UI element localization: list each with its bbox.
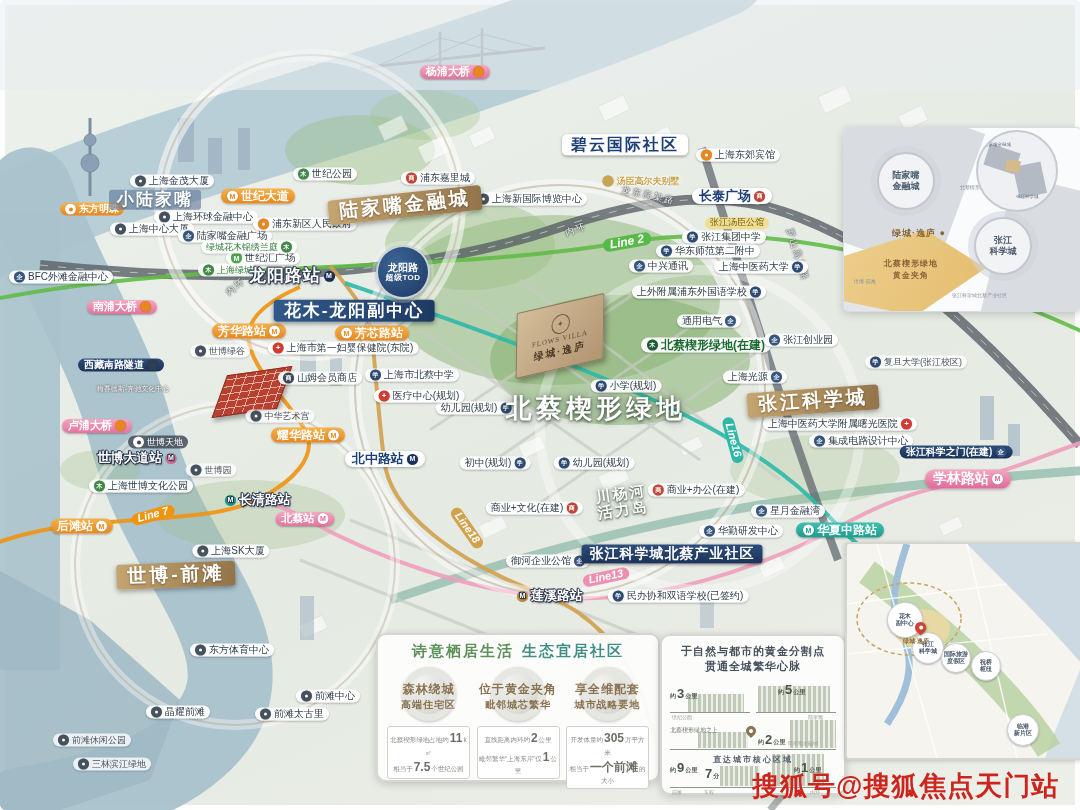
map-label: 木世纪公园	[293, 168, 357, 181]
golden-stat-caption: 世纪公园	[672, 714, 692, 720]
pin-o-icon	[701, 150, 712, 161]
inset-ring-lujiazui: 陆家嘴金融城	[877, 152, 935, 210]
inset-project-label: 绿城·逸庐 ●	[892, 227, 946, 240]
map-label: 卢浦大桥	[62, 419, 132, 433]
panel-eco-title: 诗意栖居生活生态宜居社区	[378, 642, 658, 661]
map-label: 南浦大桥	[87, 300, 157, 314]
map-label: 学民办协和双语学校(已签约)	[608, 590, 749, 603]
map-label: 上海金茂大厦	[130, 175, 214, 188]
map-label: 学华东师范第二附中	[656, 245, 760, 258]
office-icon: 企	[995, 447, 1006, 458]
map-label: 川杨河活力岛	[594, 482, 649, 521]
map-label: Line 7	[130, 504, 175, 527]
map-label: Line 2	[602, 231, 652, 252]
map-label: 学复旦大学(张江校区)	[865, 356, 967, 369]
golden-stat-caption: 前滩	[672, 789, 682, 795]
map-label: 北蔡站M	[276, 512, 335, 526]
map-label: 商商业+办公(在建)	[648, 484, 745, 497]
pin-w-icon	[65, 204, 76, 215]
map-label: 商山姆会员商店	[278, 372, 362, 385]
map-label: 上海SK大厦	[192, 545, 269, 558]
office-icon: 企	[814, 436, 825, 447]
mall-icon: 商	[653, 485, 664, 496]
map-label: 学林路站M	[925, 469, 1011, 488]
map-label: 上海东郊宾馆	[696, 149, 780, 162]
inset-bottom-right: 绿城·逸庐 花木副中心张江科学城国际旅游度假区祝桥枢纽临港新片区	[845, 542, 1080, 760]
map-label: Line13	[582, 566, 630, 587]
inset-tiny-left: 世博·前滩	[854, 278, 876, 284]
magnifier-label-2: 张江科学城	[1016, 194, 1039, 199]
map-label: 北蔡楔形绿地	[506, 394, 686, 422]
school-icon: 学	[750, 287, 761, 298]
metro-w-pink-icon: M	[992, 473, 1003, 484]
corridor-node: 祝桥枢纽	[971, 651, 1001, 681]
map-label: 企集成电路设计中心	[809, 435, 913, 448]
hospital-icon: +	[901, 419, 912, 430]
inset-ring-zhangjiang: 张江科学城	[974, 217, 1032, 275]
map-label: 后滩站M	[51, 519, 113, 534]
metro-w-orange-icon: M	[328, 429, 339, 440]
metro-navy-icon: M	[324, 270, 335, 281]
dot-orange-icon	[140, 302, 151, 313]
map-label: +医疗中心(规划)	[374, 390, 465, 403]
pin-icon	[159, 212, 170, 223]
map-label: 世博绿谷	[190, 345, 250, 358]
office-icon: 企	[14, 272, 25, 283]
map-label: 陆家嘴金融城	[327, 185, 483, 225]
hospital-icon: +	[379, 391, 390, 402]
map-label: 耀华路站M	[271, 428, 345, 443]
park-icon: 木	[281, 242, 292, 253]
pin-o-icon	[258, 219, 269, 230]
map-label: Line16	[721, 416, 745, 464]
watermark: 搜狐号@搜狐焦点天门站	[752, 768, 1059, 804]
map-label: 北中路站M	[345, 451, 425, 467]
map-label: 前滩休闲公园	[53, 734, 131, 747]
map-label: 东方体育中心	[190, 644, 274, 657]
feature-stat-box: 北蔡楔形绿地占地约11k㎡相当于7.5个世纪公园	[387, 726, 470, 779]
pin-icon	[195, 346, 206, 357]
pin-icon	[115, 224, 126, 235]
map-label: 上外附属浦东外国语学校学	[632, 286, 766, 299]
map-label: 前滩太古里	[255, 708, 329, 721]
inset-wedge-label: 北蔡楔形绿地 黄金夹角	[884, 258, 938, 282]
map-label: 前滩中心	[296, 690, 360, 703]
school-icon: 学	[792, 262, 803, 273]
golden-distance-stat: 约5公里	[778, 682, 805, 697]
mall-icon: 商	[406, 173, 417, 184]
metro-green-icon: M	[231, 253, 242, 264]
map-label: 企中兴通讯	[629, 260, 693, 273]
map-label: 内环	[564, 222, 588, 238]
map-label: 初中(规划)学	[460, 457, 531, 470]
map-label: 商浦东嘉里城	[401, 172, 475, 185]
map-label: 上海光源企	[723, 371, 787, 384]
map-label: 长泰广场商	[692, 188, 772, 204]
map-label: 商业+文化(在建)商	[486, 502, 583, 515]
map-label: M莲溪路站	[517, 589, 583, 603]
office-icon: 企	[756, 506, 767, 517]
dot-orange-icon	[473, 67, 484, 78]
park-dk-icon: 木	[647, 339, 658, 350]
map-label: 木上海世博文化公园	[89, 480, 193, 493]
map-label: 西藏南路隧道	[78, 359, 164, 372]
school-icon: 学	[687, 232, 698, 243]
golden-distance-stat: 约3公里	[670, 686, 697, 701]
pin-icon	[78, 759, 89, 770]
park-icon: 木	[94, 481, 105, 492]
map-label: 学小学(规划)	[591, 380, 662, 393]
map-label: 张江科学之门(在建)企	[900, 446, 1013, 459]
map-label: M芳芯路站	[335, 326, 409, 341]
office-icon: 企	[769, 335, 780, 346]
tod-badge-line2: 超级TOD	[385, 273, 420, 282]
map-label: 张江科学城北蔡产业社区	[582, 544, 763, 563]
map-label: 汤臣高尔夫别墅	[603, 176, 680, 187]
metro-w-pink-icon: M	[318, 514, 329, 525]
map-label: 世博天地	[128, 436, 188, 449]
map-label: 晶耀前滩	[146, 706, 210, 719]
map-label: 学张江集团中学	[682, 231, 766, 244]
dot-orange-icon	[115, 421, 126, 432]
school-icon: 学	[870, 357, 881, 368]
map-label: 绿城花木锦绣兰庭木	[201, 241, 297, 254]
metro-navy-icon: M	[407, 454, 418, 465]
map-label: Line18	[449, 505, 486, 550]
pin-icon	[251, 411, 262, 422]
office-icon: 企	[183, 231, 194, 242]
map-label: M长清路站	[225, 493, 291, 507]
school-icon: 学	[596, 381, 607, 392]
dot-gold-icon	[603, 176, 614, 187]
golden-stat-caption: 陆家嘴金融城	[788, 740, 818, 746]
golden-note-left: 北蔡楔形绿地之上	[670, 726, 718, 735]
pin-icon	[195, 645, 206, 656]
office-icon: 企	[634, 261, 645, 272]
map-label: 小陆家嘴	[109, 190, 201, 210]
map-label: 梅赛德斯-奔驰文化中心	[97, 385, 169, 393]
map-label: +上海市第一妇婴保健院(东院)	[268, 342, 419, 355]
school-icon: 学	[559, 458, 570, 469]
map-label: 龙阳路站M	[249, 267, 335, 285]
inset-pin-label: 绿城·逸庐	[903, 637, 929, 646]
pin-icon	[301, 691, 312, 702]
feature-stat-box: 直线距离内环约2公里毗邻繁华“上海东岸”仅1公里	[477, 726, 560, 779]
eco-feature-column: 森林绕城高端住宅区北蔡楔形绿地占地约11k㎡相当于7.5个世纪公园	[387, 665, 470, 789]
magnifier-circle: 陆家嘴金融城 张江科学城	[976, 130, 1058, 212]
pin-icon	[197, 546, 208, 557]
inset-tiny-bottom: 张江科学城北蔡产业社区	[952, 292, 1007, 298]
map-label: 世博园	[186, 464, 237, 477]
feature-stat-box: 开发体量约305万平方米相当于一个前滩的大小	[566, 726, 649, 789]
metro-w-orange-icon: M	[269, 325, 280, 336]
office-icon: 企	[704, 526, 715, 537]
map-label: 碧云国际社区	[562, 134, 688, 155]
map-label: 世博-前滩	[116, 561, 236, 590]
metro-gold-icon: M	[517, 591, 528, 602]
pin-icon	[191, 465, 202, 476]
tod-badge-line1: 龙阳路	[388, 262, 418, 274]
map-label: 三林滨江绿地	[73, 758, 151, 771]
map-label: 企星月金融湾	[751, 505, 825, 518]
pin-w2-icon	[133, 437, 144, 448]
pin-icon	[58, 735, 69, 746]
school-icon: 学	[661, 246, 672, 257]
mall-icon: 商	[754, 191, 765, 202]
metro-w-orange-icon: M	[96, 520, 107, 531]
metro-w-orange-icon: M	[341, 327, 352, 338]
hospital-icon: +	[273, 343, 284, 354]
mall-dk-icon: 商	[283, 373, 294, 384]
panel-eco: 诗意栖居生活生态宜居社区 森林绕城高端住宅区北蔡楔形绿地占地约11k㎡相当于7.…	[376, 633, 660, 782]
golden-stat-caption: 车程	[704, 789, 714, 795]
school-icon: 学	[613, 591, 624, 602]
eco-feature-column: 享全维配套城市战略要地开发体量约305万平方米相当于一个前滩的大小	[566, 665, 649, 789]
map-label: 幼儿园(规划)学	[436, 402, 517, 415]
park-icon: 木	[203, 265, 214, 276]
eco-feature-column: 位于黄金夹角毗邻城芯繁华直线距离内环约2公里毗邻繁华“上海东岸”仅1公里	[477, 665, 560, 789]
map-label: 上海新国际博览中心	[473, 193, 587, 206]
school-icon: 学	[370, 370, 381, 381]
pin-icon	[260, 709, 271, 720]
magnifier-label-1: 陆家嘴金融城	[984, 142, 1011, 147]
metro-teal-icon: M	[225, 495, 236, 506]
map-label: 张江科学城	[746, 384, 879, 418]
map-label: 企BFC外滩金融中心	[9, 271, 113, 284]
dot-dark-icon	[147, 360, 158, 371]
golden-distance-stat: 7分	[704, 766, 719, 781]
golden-distance-stat: 约2公里	[758, 732, 785, 747]
map-label: 通用电气企	[677, 315, 741, 328]
map-label: 御河企业公馆企	[506, 555, 590, 568]
map-label: 世博大道站M	[98, 451, 177, 465]
map-label: 张江汤臣公馆	[705, 217, 769, 229]
school-icon: 学	[514, 458, 525, 469]
map-label: 上海中医药大学附属曙光医院+	[763, 418, 917, 431]
map-label: 杨浦大桥	[420, 65, 490, 79]
metro-w-teal-icon: M	[803, 524, 814, 535]
office-icon: 企	[725, 316, 736, 327]
golden-stat-caption: 陆家嘴	[808, 714, 823, 720]
pin-icon	[151, 707, 162, 718]
tod-badge: 龙阳路 超级TOD	[376, 245, 430, 299]
map-label: M世纪大道	[221, 189, 295, 204]
map-label: 木北蔡楔形绿地(在建)	[641, 338, 771, 353]
inset-top-right: 陆家嘴金融城 张江科学城 陆家嘴金融城 张江科学城 绿城·逸庐 ● 北蔡楔形绿地…	[843, 127, 1080, 312]
map-label: 花木-龙阳副中心	[274, 300, 435, 322]
pin-icon	[135, 176, 146, 187]
map-screenshot: 小陆家嘴M世纪大道陆家嘴金融城碧云国际社区花木-龙阳副中心北蔡楔形绿地张江科学城…	[0, 0, 1080, 810]
corridor-node: 临港新片区	[1007, 714, 1039, 746]
map-label: 上海中医药大学学	[714, 261, 808, 274]
map-label: M华夏中路站	[796, 523, 884, 538]
metro-w-orange-icon: M	[227, 190, 238, 201]
map-label: 学上海市北蔡中学	[365, 369, 459, 382]
golden-distance-stat: 约9公里	[670, 760, 697, 775]
map-label: 学幼儿园(规划)	[554, 457, 635, 470]
metro-pink-icon: M	[166, 453, 177, 464]
park-icon: 木	[298, 169, 309, 180]
map-label: 内环	[224, 276, 247, 297]
map-label: 企华勤研发中心	[699, 525, 783, 538]
map-label: 龙东高架路	[620, 186, 676, 207]
office-icon: 企	[771, 372, 782, 383]
map-label: 企张江创业园	[764, 334, 838, 347]
map-label: 中华艺术宫	[246, 410, 315, 423]
map-label: 罗山高架路	[784, 227, 810, 282]
mall-icon: 商	[566, 503, 577, 514]
corridor-node: 国际旅游度假区	[941, 643, 971, 673]
map-label: 芳华路站M	[212, 324, 286, 339]
